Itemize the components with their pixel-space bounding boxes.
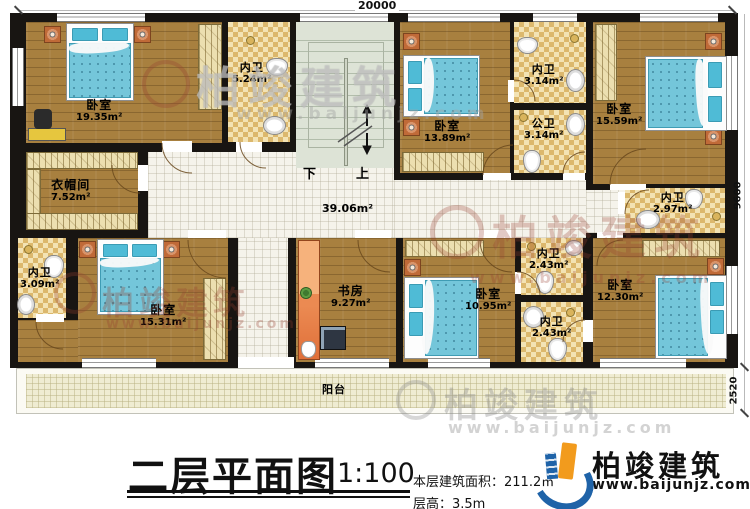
bedroom-bottomleft [18,320,78,362]
door-opening [508,80,514,102]
nightstand [403,33,420,50]
sink-icon [566,69,585,92]
balcony-door-opening [238,357,294,368]
stair-down-label: 下 [303,168,317,183]
window [726,266,738,334]
wardrobe [405,240,484,257]
door-opening [610,184,646,190]
faucet-icon [246,36,255,45]
sink-icon [566,113,585,136]
nightstand [404,259,421,276]
door-opening [355,230,391,238]
room-label: 书房9.27m² [331,285,370,310]
wardrobe [402,152,484,172]
room-label: 内卫5.24m² [232,62,271,86]
nightstand [163,241,180,258]
balcony-floor [26,374,726,408]
door-opening [478,230,512,238]
room-label: 卧室12.30m² [597,279,643,304]
window [300,13,388,22]
nightstand [134,26,151,43]
wardrobe [642,240,720,257]
room-label: 卧室13.89m² [424,120,470,145]
door-opening [563,173,585,180]
window [408,13,500,22]
room-label: 内卫3.14m² [524,64,563,88]
door-opening [618,192,625,214]
door-opening [138,165,148,191]
door-opening [188,230,226,238]
window [600,358,686,368]
dim-line-right2 [744,368,745,414]
dim-top: 20000 [355,0,399,12]
nightstand [79,241,96,258]
room-label: 内卫3.09m² [20,267,59,291]
door-opening [36,314,64,322]
nightstand [44,26,61,43]
window [82,358,156,368]
nightstand [707,258,724,275]
sink-icon [17,294,35,315]
bed [655,275,727,359]
title-underline-2 [127,496,410,498]
cup-icon [301,341,316,358]
plant-icon [300,287,312,299]
room-label: 卧室19.35m² [76,99,122,124]
room-label: 内卫2.43m² [529,248,568,272]
plan-title: 二层平面图 [128,444,338,502]
title-underline [127,490,410,493]
faucet-icon [712,212,721,221]
room-label: 卧室15.59m² [596,103,642,128]
dim-line-right [744,14,745,368]
dim-balcony: 2520 [728,377,739,405]
room-label: 卧室15.31m² [140,304,186,329]
window [428,358,490,368]
door-opening [583,320,593,342]
wardrobe [26,169,41,214]
desk [28,128,66,141]
chair [34,109,52,129]
room-label: 衣帽间7.52m² [51,179,90,204]
brand-logo-icon [536,443,586,499]
nightstand [705,33,722,50]
faucet-icon [24,245,33,254]
wardrobe [26,213,138,230]
dim-right: 9600 [732,182,743,210]
wardrobe [26,152,138,169]
window [12,48,24,106]
door-opening [515,272,521,294]
room-label: 卧室10.95m² [465,288,511,313]
door-opening [162,141,192,152]
faucet-icon [570,34,579,43]
balcony-label: 阳台 [322,384,346,396]
plan-scale: 1:100 [337,458,415,489]
window [315,358,389,368]
hall-area-label: 39.06m² [322,203,373,215]
wardrobe [198,24,222,110]
nightstand [403,119,420,136]
computer-icon [320,326,346,350]
hallway [238,238,288,362]
room-label: 公卫3.14m² [524,118,563,142]
window [726,56,738,130]
stair-up-label: 上 [356,168,370,183]
door-opening [483,173,511,180]
room-label: 内卫2.43m² [532,316,571,340]
stair-handrail [344,58,348,166]
bed [403,55,480,117]
door-opening [236,142,262,152]
room-label: 内卫2.97m² [653,192,692,216]
bed [645,56,727,131]
brand-url: www.baijunjz.com [592,477,750,493]
wardrobe [203,278,226,360]
bed [66,23,134,101]
window [533,13,577,22]
hallway [148,152,296,238]
door-opening [597,232,623,238]
window [57,13,145,22]
sink-icon [263,116,286,135]
wardrobe [595,24,617,101]
watermark-url: www.baijunjz.com [448,418,675,437]
floor-height-note: 层高：3.5m [413,493,485,509]
floor-plan-page: 39.06m² 卧室19.35m² 内卫5.24m² 下 上 卧室13.89m² [0,0,750,509]
window [640,13,718,22]
